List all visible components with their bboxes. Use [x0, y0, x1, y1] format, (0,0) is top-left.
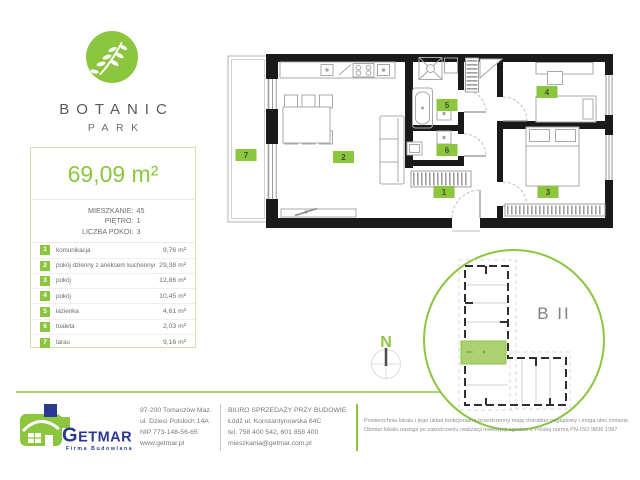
footer-divider-green [356, 404, 358, 451]
email-link[interactable]: mieszkania@getmar.com.pl [228, 438, 354, 449]
room-area: 29,38 m² [159, 262, 186, 269]
room-number-badge: 1 [40, 245, 50, 255]
room-number-badge: 7 [40, 338, 50, 348]
table-row: 7taras9,16 m² [31, 335, 195, 350]
dining-table [283, 95, 333, 144]
building-overview: B II [424, 250, 604, 430]
plan-room-number: 7 [244, 151, 249, 160]
room-area: 9,76 m² [163, 247, 186, 254]
address-line: 97-200 Tomaszów Maz. [140, 405, 220, 416]
room-name: pokój dzienny z aneksem kuchennym [56, 262, 155, 269]
brand-name: BOTANIC [30, 101, 196, 118]
address-line: NIP 773-148-56-65 [140, 427, 220, 438]
room-name: toaleta [56, 323, 159, 330]
table-row: 3pokój12,86 m² [31, 274, 195, 289]
terrace [228, 56, 268, 222]
company-tagline: Firma Budowlana [66, 446, 133, 452]
table-row: 6toaleta2,03 m² [31, 320, 195, 335]
address-line: ul. Dzieci Polskich 14A [140, 416, 220, 427]
sales-office-info: BIURO SPRZEDAŻY PRZY BUDOWIE Łódź ul. Ko… [228, 405, 354, 449]
disclaimer-line: Powierzchnia lokalu i jego układ funkcjo… [364, 417, 636, 426]
office-line: tel. 758 400 542, 601 858 400 [228, 427, 354, 438]
detail-label: PIĘTRO: [66, 216, 134, 226]
room-name: pokój [56, 293, 155, 300]
table-row: 5łazienka4,61 m² [31, 304, 195, 319]
plan-room-number: 6 [445, 146, 450, 155]
footer-divider [220, 404, 221, 451]
brand-block: BOTANIC PARK [30, 14, 196, 134]
company-rest: ETMAR [78, 430, 132, 446]
room-name: pokój [56, 277, 155, 284]
sofa [380, 116, 404, 184]
detail-value: 3 [137, 227, 161, 237]
rooms-table: 1komunikacja9,76 m² 2pokój dzienny z ane… [31, 243, 195, 350]
company-initial: G [62, 425, 78, 447]
office-line: Łódź ul. Konstantynowska 64C [228, 416, 354, 427]
table-row: 4pokój10,45 m² [31, 289, 195, 304]
disclaimer: Powierzchnia lokalu i jego układ funkcjo… [364, 417, 636, 435]
room-number-badge: 2 [40, 261, 50, 271]
table-row: 1komunikacja9,76 m² [31, 243, 195, 258]
room-area: 12,86 m² [159, 277, 186, 284]
disclaimer-line: Obmiar lokalu nastąpi po zakończeniu rea… [364, 426, 636, 435]
svg-text:GETMAR: GETMAR [62, 425, 132, 447]
unit-area: 69,09 m² [31, 161, 195, 187]
botanic-logo-icon [30, 14, 196, 92]
table-row: 2pokój dzienny z aneksem kuchennym29,38 … [31, 259, 195, 274]
kitchen-counter [280, 62, 395, 78]
detail-label: LICZBA POKOI: [66, 227, 134, 237]
plan-room-number: 3 [546, 188, 551, 197]
room-number-badge: 3 [40, 276, 50, 286]
room-name: komunikacja [56, 247, 159, 254]
room-number-badge: 6 [40, 322, 50, 332]
tv-bench [281, 209, 356, 218]
company-address: 97-200 Tomaszów Maz. ul. Dzieci Polskich… [140, 405, 220, 449]
plan-room-number: 2 [341, 153, 346, 162]
room-area: 4,61 m² [163, 308, 186, 315]
room-area: 10,45 m² [159, 293, 186, 300]
building-label: B II [537, 304, 571, 323]
compass: N [372, 334, 401, 379]
unit-details: MIESZKANIE:45 PIĘTRO:1 LICZBA POKOI:3 [31, 200, 195, 242]
unit-info-box: 69,09 m² MIESZKANIE:45 PIĘTRO:1 LICZBA P… [30, 147, 196, 348]
plan-room-number: 5 [445, 101, 450, 110]
website-link[interactable]: www.getmar.pl [140, 438, 220, 449]
plan-room-number: 1 [442, 188, 447, 197]
room-name: łazienka [56, 308, 159, 315]
getmar-logo: GETMAR Firma Budowlana [18, 400, 153, 455]
doors [452, 90, 527, 218]
room-name: taras [56, 339, 159, 346]
brand-subtitle: PARK [30, 122, 196, 134]
flyer-page: 7 2 5 6 1 4 3 [0, 0, 640, 480]
detail-label: MIESZKANIE: [66, 206, 134, 216]
detail-value: 1 [137, 216, 161, 226]
room-area: 2,03 m² [163, 323, 186, 330]
plan-room-number: 4 [545, 88, 550, 97]
detail-value: 45 [137, 206, 161, 216]
room-number-badge: 5 [40, 307, 50, 317]
room-area: 9,16 m² [163, 339, 186, 346]
office-line: BIURO SPRZEDAŻY PRZY BUDOWIE [228, 405, 354, 416]
room-number-badge: 4 [40, 291, 50, 301]
